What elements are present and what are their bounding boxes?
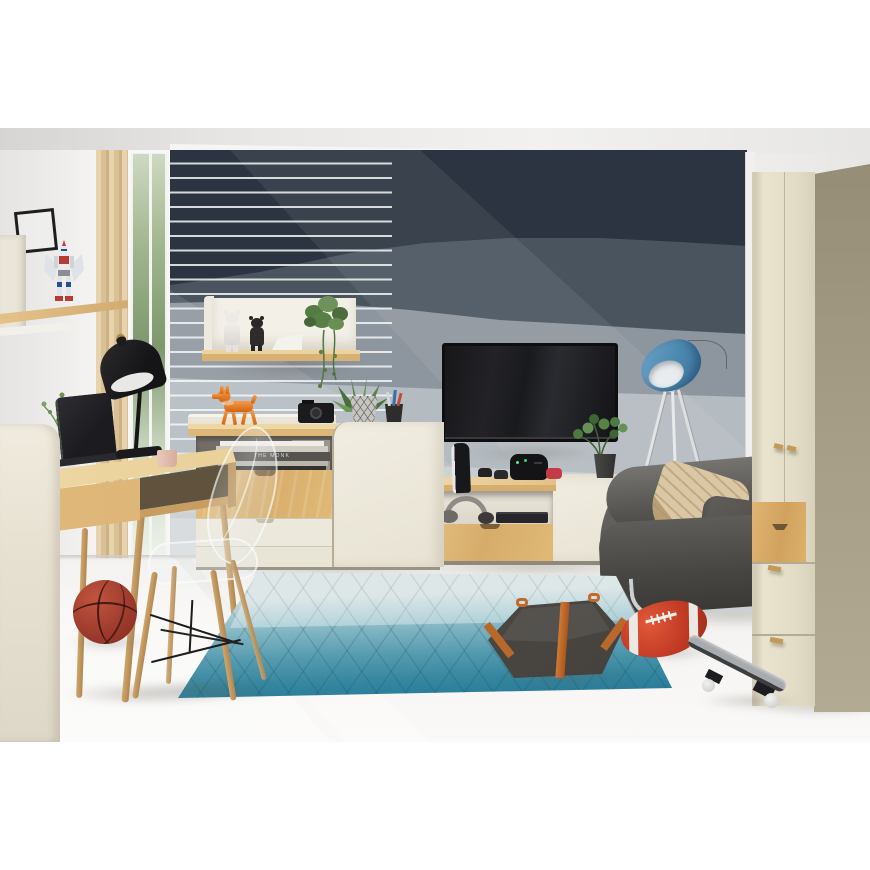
dog-figurine: [212, 386, 264, 428]
chair-shadow: [140, 680, 280, 700]
camera-lens: [310, 407, 322, 419]
pouf-loop: [516, 598, 528, 607]
wardrobe-seam-3: [752, 634, 815, 636]
wardrobe-seam-2: [752, 562, 815, 564]
vr-headset: [510, 454, 548, 480]
photo-area: THE MONK: [0, 128, 870, 742]
bearbrick-black: [248, 318, 266, 352]
game-controller-2: [494, 470, 508, 479]
pouf-loop-2: [588, 593, 600, 602]
camera: [298, 403, 334, 423]
wardrobe-oak-drawer: [752, 502, 806, 562]
skateboard-shadow: [700, 694, 804, 708]
sideboard-door: [332, 422, 444, 567]
pencil-cup: [384, 404, 404, 422]
bearbrick-white: [222, 312, 242, 352]
wardrobe-door-handle-2: [787, 445, 797, 452]
wardrobe-oak-drawer-notch: [772, 524, 788, 530]
tv-stand-drawer: [428, 524, 553, 561]
vr-led: [516, 461, 519, 464]
wardrobe-drawer-handle: [768, 565, 782, 572]
tv-stand-plinth: [428, 561, 628, 565]
vr-led-2: [524, 459, 527, 462]
camera-top: [302, 400, 314, 404]
product-photo: THE MONK: [0, 0, 870, 870]
gundam-figure: [44, 236, 84, 310]
skateboard-wheel: [702, 679, 715, 692]
tv-stand-drawer-notch: [480, 524, 500, 529]
mug: [157, 450, 177, 467]
floor-lamp-opening: [645, 356, 688, 393]
football-stripe: [629, 606, 639, 666]
media-player: [496, 512, 548, 523]
wardrobe: [752, 172, 815, 706]
game-controller: [478, 468, 492, 477]
left-cream-panel: [0, 424, 60, 742]
football-lace-ticks: [646, 610, 675, 626]
skateboard-wheel-2: [764, 693, 779, 708]
game-console: [451, 443, 471, 494]
wardrobe-drawer-handle-2: [770, 637, 784, 644]
ghost-chair-seat: [147, 536, 260, 586]
wardrobe-door-handle: [774, 443, 784, 450]
basketball: [73, 580, 137, 644]
wardrobe-door-seam: [784, 172, 785, 504]
red-controller: [546, 468, 562, 479]
wardrobe-side: [814, 164, 870, 712]
vr-strap: [534, 462, 542, 464]
headphone-cup-2: [478, 512, 494, 524]
